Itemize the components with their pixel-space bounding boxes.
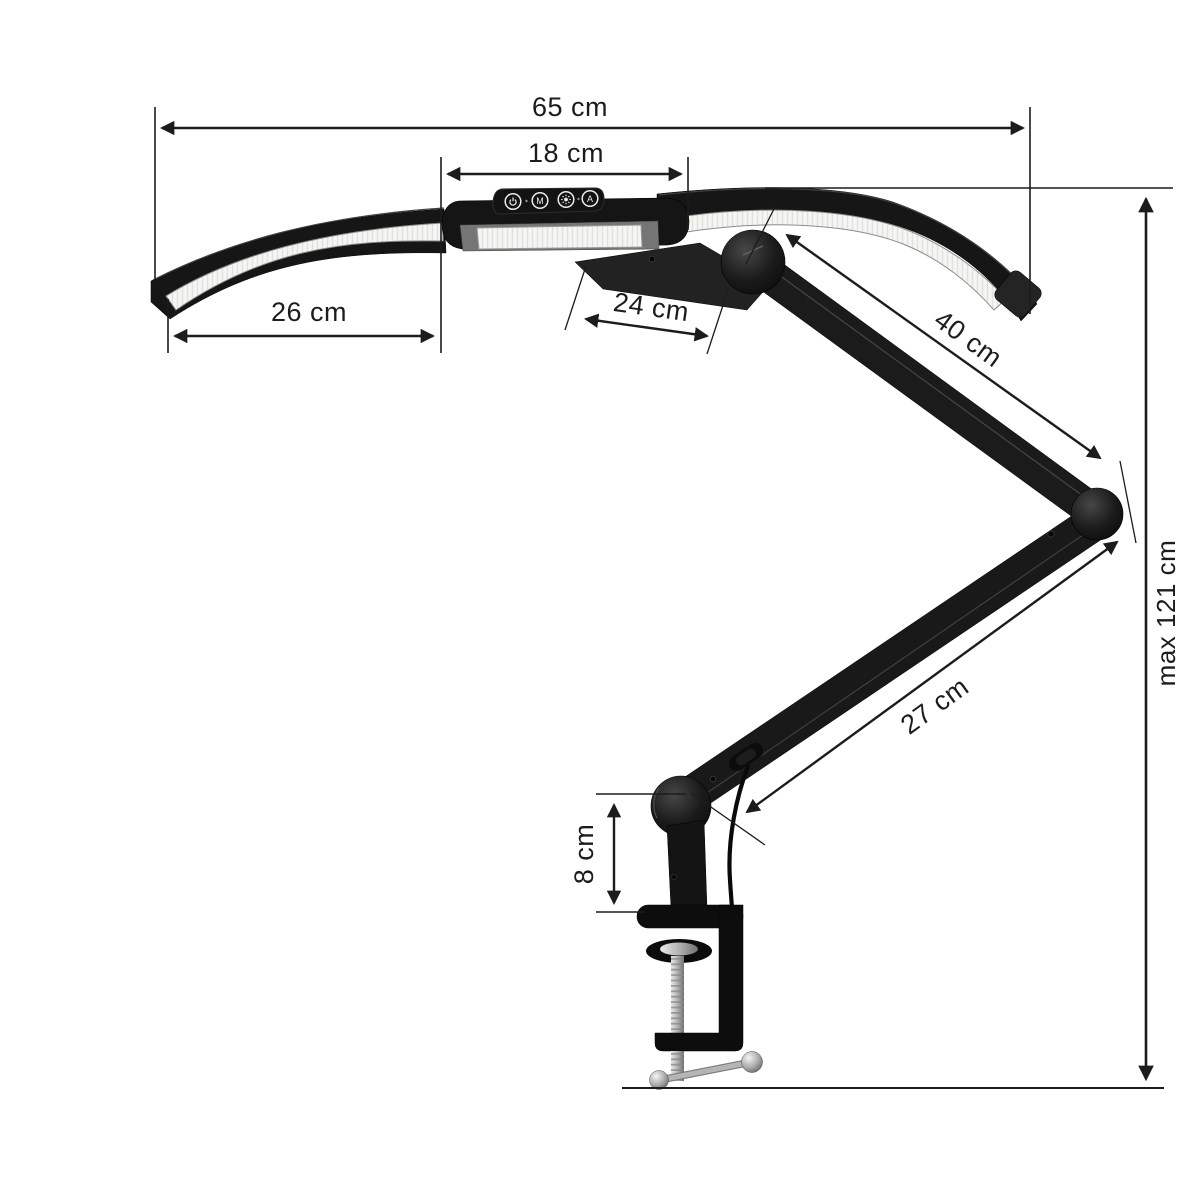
post-screw: [672, 875, 677, 880]
head-pivot-joint: [721, 230, 785, 294]
clamp-pad-center: [660, 943, 698, 956]
label-total-width: 65 cm: [532, 92, 608, 122]
bracket-screw: [649, 256, 655, 262]
lower-joint-screw: [710, 776, 716, 782]
dim-40: [787, 235, 1100, 458]
dim-27: [747, 542, 1117, 812]
mode-button-label: M: [536, 196, 544, 206]
indicator-dot-2: [577, 198, 579, 200]
clamp-screw-upper: [671, 956, 684, 1036]
brightness-sun-icon: [561, 195, 571, 205]
tick-24-left: [565, 266, 586, 330]
label-lower-arm: 27 cm: [895, 671, 974, 740]
clamp-handle-ball-right: [742, 1052, 763, 1073]
elbow-joint: [1071, 488, 1123, 540]
head-led-panel: [477, 225, 642, 249]
control-panel: M A: [493, 188, 604, 214]
label-clamp-height: 8 cm: [569, 824, 599, 885]
label-head-width: 18 cm: [528, 138, 604, 168]
tick-elbow: [1120, 461, 1136, 543]
upper-arm-highlight: [757, 259, 1101, 509]
lamp-dimension-diagram: M A: [0, 0, 1200, 1200]
label-left-panel: 26 cm: [271, 297, 347, 327]
label-max-height: max 121 cm: [1151, 540, 1181, 687]
indicator-dot-1: [525, 200, 527, 202]
lower-arm-screw: [1048, 531, 1054, 537]
table-clamp: [637, 905, 763, 1090]
upper-arm: [743, 249, 1108, 529]
mount-post: [667, 820, 707, 908]
clamp-handle-ball-left: [650, 1071, 669, 1090]
auto-button-label: A: [587, 194, 593, 204]
diagram-canvas: M A: [0, 0, 1200, 1200]
